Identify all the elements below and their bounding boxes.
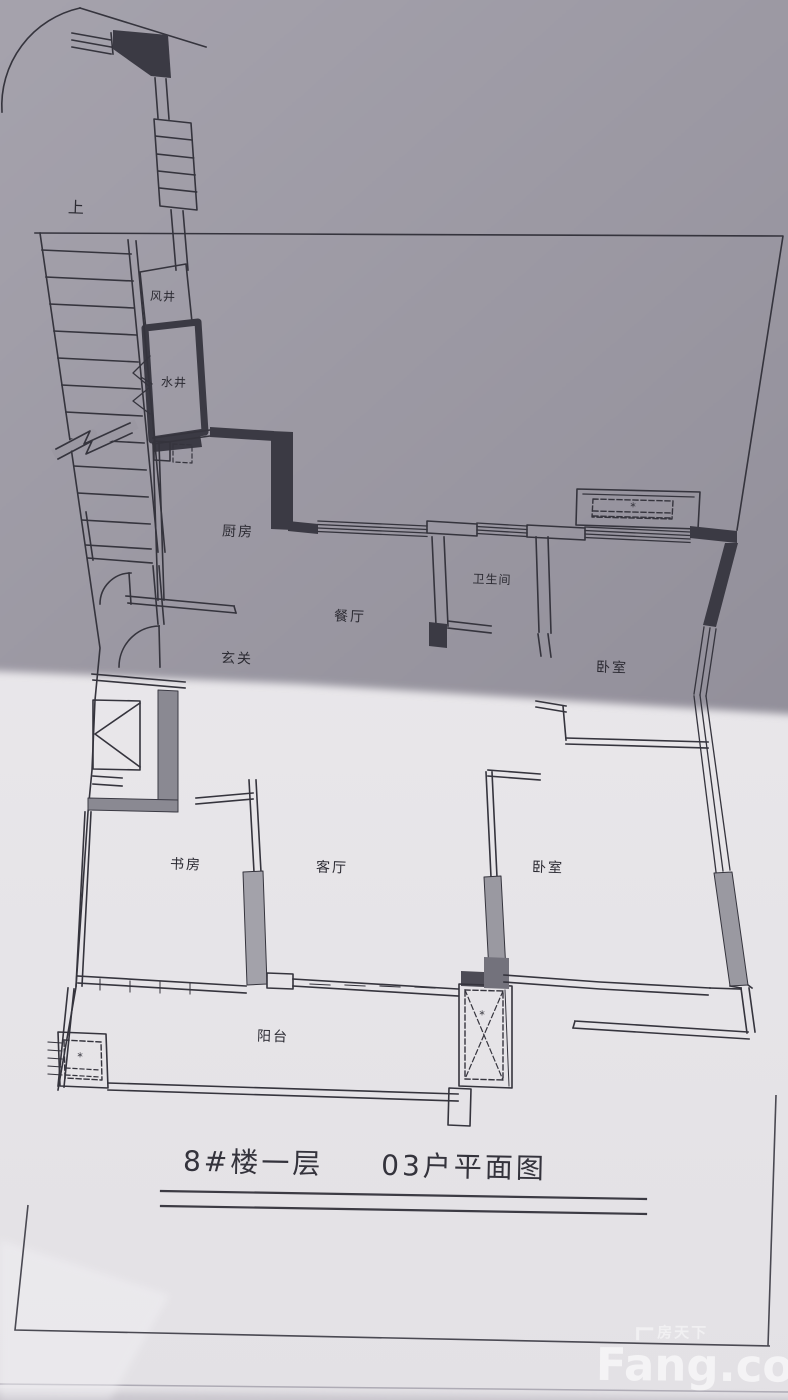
label-kitchen: 厨房 [222,520,255,541]
ac-symbol-right: * [479,1008,485,1021]
label-study: 书房 [170,853,203,874]
drawing-title-unit: 03户平面图 [381,1144,547,1187]
ac-symbol-left: * [77,1050,83,1063]
label-stairs-up: 上 [68,194,85,219]
floor-plan-drawing [0,0,788,1400]
label-balcony: 阳台 [257,1025,290,1046]
label-bedroom-lower: 卧室 [532,856,565,877]
fang-watermark: 房天下 Fang.com [596,1325,788,1389]
label-living: 客厅 [316,856,349,877]
floor-plan-photo: 上 风井 水井 厨房 餐厅 玄关 卫生间 卧室 书房 客厅 卧室 阳台 * * … [0,0,788,1400]
drawing-title-building: 8#楼一层 [183,1140,324,1183]
label-air-shaft: 风井 [150,287,177,305]
label-water-shaft: 水井 [161,373,188,391]
label-bedroom-upper: 卧室 [596,656,629,677]
ac-symbol-top: * [630,500,636,513]
label-dining: 餐厅 [334,605,367,626]
fang-watermark-en: Fang.com [596,1342,788,1389]
label-bathroom: 卫生间 [472,570,512,588]
label-entry: 玄关 [221,647,254,668]
